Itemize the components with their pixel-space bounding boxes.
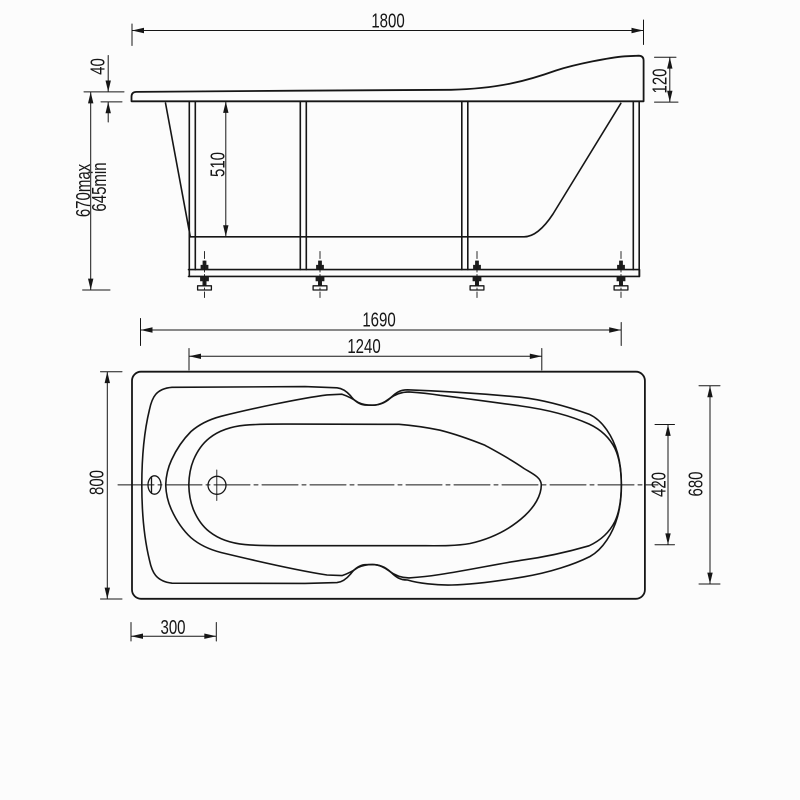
svg-text:120: 120 (648, 68, 671, 93)
svg-text:40: 40 (86, 58, 109, 75)
svg-text:1690: 1690 (362, 308, 395, 331)
svg-text:645min: 645min (88, 162, 111, 211)
svg-text:510: 510 (206, 152, 229, 177)
svg-text:800: 800 (85, 470, 108, 495)
svg-text:1800: 1800 (371, 9, 404, 32)
svg-text:300: 300 (160, 616, 185, 639)
svg-text:1240: 1240 (347, 335, 380, 358)
svg-text:420: 420 (647, 472, 670, 497)
svg-text:680: 680 (684, 471, 707, 496)
